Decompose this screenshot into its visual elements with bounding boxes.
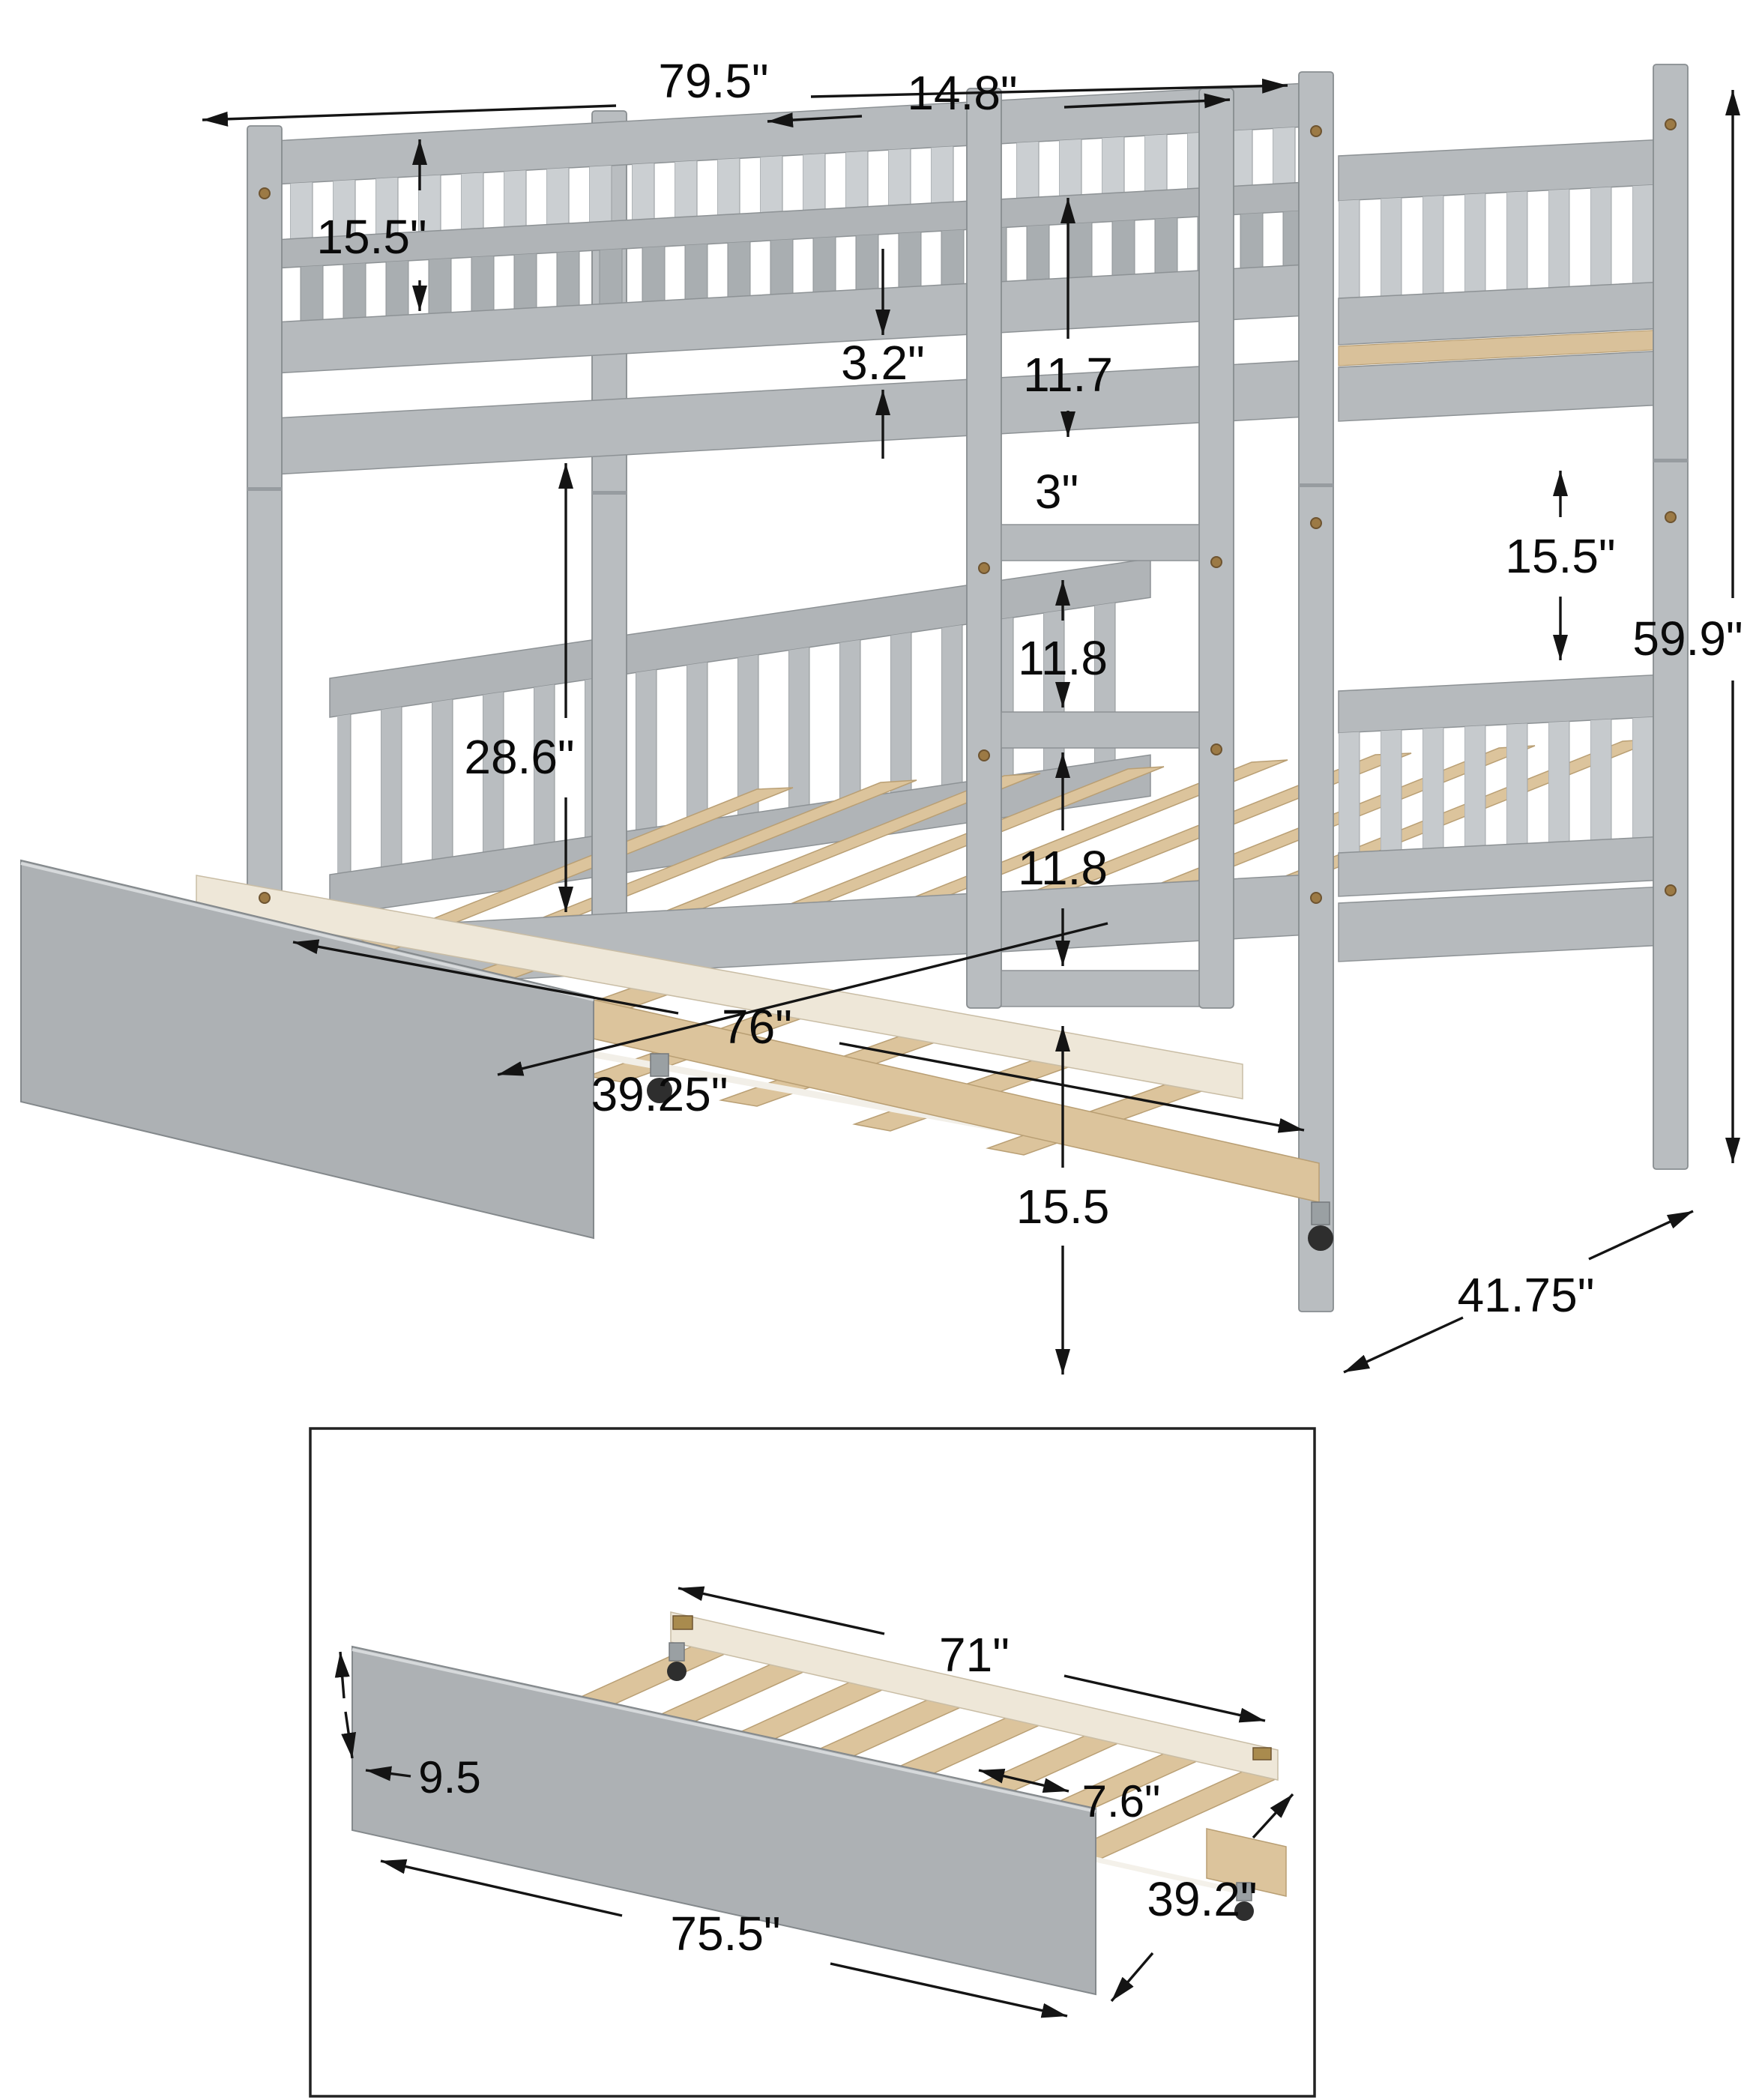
- corner-bracket: [1253, 1748, 1271, 1760]
- bunk-bed-dimension-diagram: 79.5" 15.5" 3.2" 14.8" 11.7 3": [0, 0, 1756, 2100]
- dim-frame-to-rung: 3": [1035, 465, 1078, 519]
- ladder-rung: [1001, 971, 1199, 1007]
- dim-overall-depth: 41.75": [1344, 1211, 1693, 1372]
- dim-frame-to-rung-label: 3": [1035, 465, 1078, 519]
- dim-under-bed-clearance-label: 15.5: [1016, 1180, 1110, 1234]
- post-right-front: [1299, 72, 1333, 1312]
- ladder-rung: [1001, 712, 1199, 748]
- dim-trundle-extended-length-label: 76": [722, 1000, 792, 1054]
- dim-slat-spacing-label: 7.6": [1082, 1776, 1161, 1826]
- dim-overall-depth-label: 41.75": [1458, 1268, 1595, 1322]
- dim-panel-height-label: 9.5: [418, 1752, 480, 1802]
- top-bunk-frame-rail: [282, 361, 1299, 474]
- dim-bunk-gap-label: 28.6": [464, 730, 574, 784]
- ladder-rail-left: [967, 88, 1001, 1008]
- dim-rail-gap-label: 3.2": [841, 336, 925, 390]
- post-seam: [1299, 483, 1333, 487]
- dim-trundle-length-label: 75.5": [670, 1907, 780, 1961]
- dim-trundle-width-label: 39.2": [1147, 1872, 1257, 1926]
- foot-lower-slat-row: [1339, 716, 1659, 853]
- top-bunk-guard-rail: [282, 84, 1299, 474]
- dim-lower-panel-height: 15.5": [1505, 471, 1615, 660]
- bottom-bunk-frame-rail-right: [1339, 887, 1659, 962]
- foot-upper-slat-row: [1339, 184, 1659, 298]
- dim-bed-inner-width-label: 39.25": [591, 1067, 728, 1121]
- foot-panel-upper: [1339, 139, 1659, 421]
- dim-lower-panel-height-label: 15.5": [1505, 529, 1615, 583]
- dim-ladder-width-label: 14.8": [907, 66, 1017, 120]
- corner-bracket: [673, 1616, 693, 1629]
- post-seam: [592, 491, 627, 495]
- dim-rung-gap-lower-label: 11.8: [1018, 841, 1108, 895]
- dim-overall-height-label: 59.9": [1632, 612, 1743, 666]
- dim-overall-length-label: 79.5": [658, 54, 768, 108]
- foot-panel-lower: [1339, 675, 1659, 962]
- post-seam: [247, 487, 282, 491]
- trundle-inset: 71" 9.5 7.6" 75.5" 39.2": [310, 1428, 1315, 2096]
- dim-guard-rail-height-label: 15.5": [316, 210, 426, 264]
- bunk-bed: [21, 64, 1688, 1312]
- ladder-rail-right: [1199, 88, 1234, 1008]
- dim-slat-frame-length-label: 71": [939, 1628, 1010, 1682]
- post-seam: [1653, 459, 1688, 462]
- dim-rail-to-frame-label: 11.7: [1023, 348, 1113, 402]
- dim-rung-gap-upper-label: 11.8: [1018, 631, 1108, 685]
- ladder-rung: [1001, 525, 1199, 561]
